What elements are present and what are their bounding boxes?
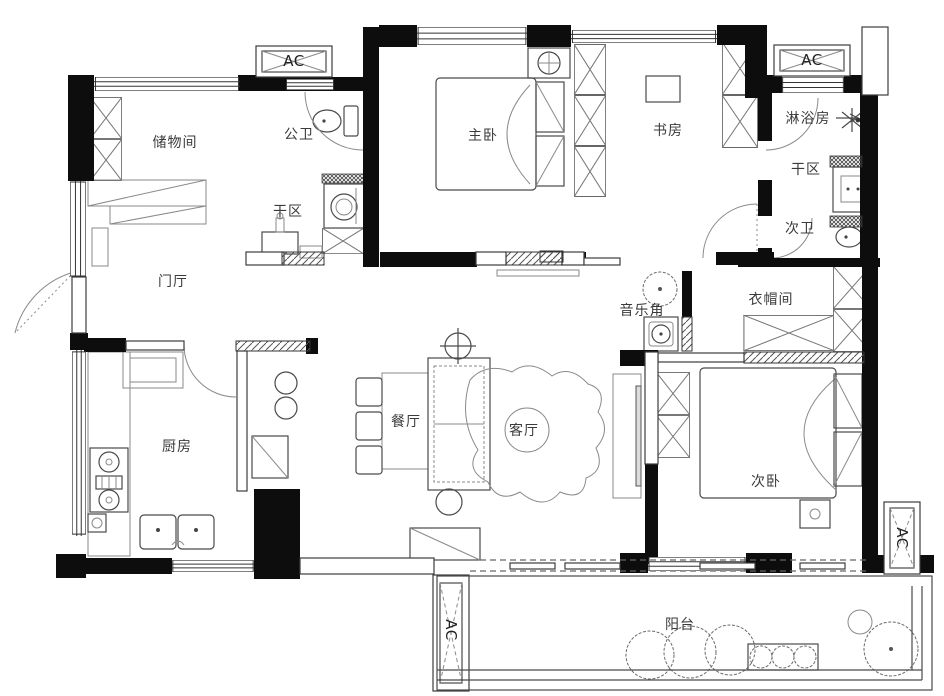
label-master-bedroom: 主卧 bbox=[468, 125, 498, 145]
shower-head-icon bbox=[842, 108, 862, 132]
master-bedroom-furniture bbox=[436, 44, 606, 197]
label-ac-top-left: AC bbox=[283, 52, 304, 70]
ceiling-light-icon bbox=[440, 328, 476, 364]
label-ac-right: AC bbox=[893, 527, 911, 548]
label-balcony: 阳台 bbox=[665, 614, 695, 634]
study-furniture bbox=[646, 42, 758, 258]
label-cloakroom: 衣帽间 bbox=[749, 289, 794, 309]
sink-icon bbox=[140, 515, 214, 549]
label-ac-bottom-center: AC bbox=[442, 619, 460, 640]
cloakroom-furniture bbox=[743, 266, 871, 352]
label-second-bedroom: 次卧 bbox=[751, 471, 781, 491]
label-study: 书房 bbox=[653, 120, 683, 140]
public-bath-fixtures bbox=[305, 92, 364, 254]
floor-plan: 储物间 公卫 干区 门厅 主卧 书房 淋浴房 干区 次卫 音乐角 衣帽间 厨房 … bbox=[0, 0, 944, 696]
entry-door-arc bbox=[15, 272, 74, 333]
label-dry-area-right: 干区 bbox=[791, 159, 821, 179]
label-public-bath: 公卫 bbox=[284, 124, 314, 144]
label-shower-room: 淋浴房 bbox=[786, 108, 831, 128]
label-dry-area-left: 干区 bbox=[273, 201, 303, 221]
label-ac-top-right: AC bbox=[801, 51, 822, 69]
floor-plan-drawing bbox=[0, 0, 944, 696]
label-entry-hall: 门厅 bbox=[158, 271, 188, 291]
label-second-bath: 次卫 bbox=[785, 218, 815, 238]
label-music-corner: 音乐角 bbox=[620, 300, 665, 320]
tv-wall bbox=[613, 374, 641, 498]
storage-room-furniture bbox=[88, 97, 206, 266]
label-storage-room: 储物间 bbox=[153, 132, 198, 152]
label-kitchen: 厨房 bbox=[162, 436, 192, 456]
stove-icon bbox=[90, 448, 128, 512]
floor-drain-icon bbox=[88, 514, 106, 532]
second-bedroom-furniture bbox=[656, 368, 862, 528]
label-living-room: 客厅 bbox=[509, 420, 539, 440]
label-dining-room: 餐厅 bbox=[391, 411, 421, 431]
